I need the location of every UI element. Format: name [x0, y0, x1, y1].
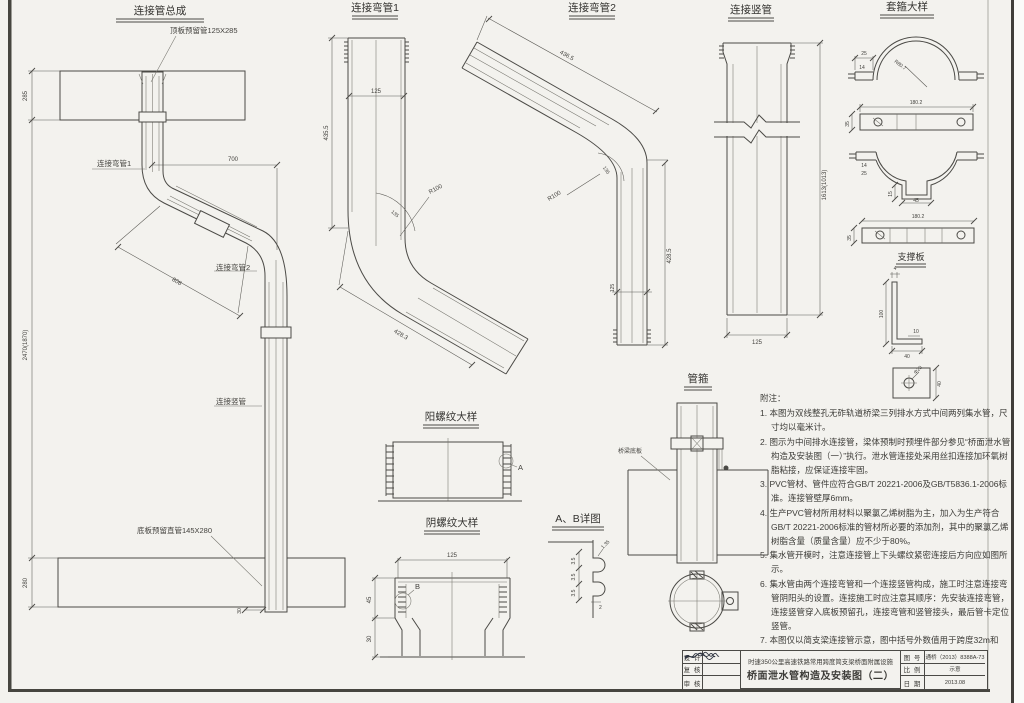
view-title: 连接弯管2	[568, 1, 616, 14]
hole-crosshair	[901, 375, 917, 391]
title-underline	[728, 18, 774, 21]
dim-40b: 40	[937, 381, 943, 387]
note-item: 6. 集水管由两个连接弯管和一个连接竖管构成，施工时注意连接弯管阴阳头的设置。连…	[760, 577, 1012, 634]
date-label: 日 期	[901, 676, 925, 689]
view-title: 套箍大样	[886, 0, 928, 13]
hoop-upper-band	[855, 37, 977, 80]
dim-2: 2	[599, 605, 602, 611]
dimension-ticks	[883, 279, 939, 401]
dim-14: 14	[859, 65, 865, 71]
check-label: 复 核	[683, 664, 703, 677]
notes-block: 附注： 1. 本图为双线整孔无砟轨道桥梁三列排水方式中间两列集水管，尺寸均以毫米…	[760, 391, 1012, 662]
dim-125: 125	[447, 553, 458, 559]
dimension-ticks	[486, 16, 668, 348]
check-signature	[703, 664, 741, 677]
title-underline	[424, 531, 480, 534]
dim-14b: 14	[861, 163, 867, 169]
dim-r100: R100	[547, 190, 563, 203]
dim-angle: 135	[390, 209, 400, 219]
label-vertical-pipe: 连接竖管	[216, 396, 246, 406]
bolt-hole	[957, 231, 965, 239]
callout-a: A	[518, 463, 523, 472]
hoop-bar1-dividers	[873, 114, 916, 130]
label-top-sleeve: 顶板预留管125X285	[170, 25, 238, 35]
male-threads	[386, 444, 511, 496]
dim-285: 285	[23, 90, 29, 101]
label-bend1: 连接弯管1	[97, 158, 131, 168]
vpipe-inner-lines	[733, 46, 781, 313]
scale-value: 示意	[925, 664, 985, 677]
view-title: 连接管总成	[134, 4, 187, 17]
view-title: 管箍	[688, 372, 709, 385]
drawing-sheet: 连接管总成 285 2470(1870) 280 700 808 30 顶板预留…	[0, 0, 1024, 703]
bolt-hole	[957, 118, 965, 126]
bracket-hole	[727, 598, 734, 605]
dimension-lines	[579, 549, 603, 602]
bend1-threads	[344, 42, 409, 62]
view-male-thread: 阳螺纹大样 A	[378, 410, 523, 501]
review-label: 审 核	[683, 676, 703, 689]
bottom-slab	[58, 558, 345, 607]
title-underline	[116, 19, 204, 22]
anchor-bolt	[724, 466, 729, 471]
dimension-ticks	[724, 40, 823, 338]
view-pipe-clamp: 管箍 桥梁底板	[618, 372, 768, 631]
callout-leader	[512, 465, 517, 467]
hoop-bar1	[860, 114, 973, 130]
dim-45: 45	[913, 198, 919, 204]
dim-1-35: 1.35	[600, 539, 611, 550]
view-bend1: 连接弯管1 125 435.5 R100 135 428.3	[324, 1, 528, 374]
dim-15: 15	[888, 191, 894, 197]
title-underline	[880, 15, 934, 18]
dim-180-1: 180.2	[910, 100, 923, 106]
drawing-no-label: 图 号	[901, 651, 925, 664]
dim-3-5-a: 3.5	[571, 557, 577, 564]
callout-b: B	[415, 582, 420, 591]
dim-125: 125	[371, 89, 382, 95]
leader-lines	[92, 36, 262, 586]
drawing-title-cell: 时速350公里高速铁路常用跨度简支梁桥面附属设施 桥面泄水管构造及安装图（二）	[741, 651, 901, 689]
dim-700: 700	[228, 157, 239, 163]
dim-428: 428.5	[667, 248, 673, 264]
dim-3-5-b: 3.5	[571, 573, 577, 580]
dim-hole: Φ20	[913, 365, 924, 376]
hoop-upper-bolt-ticks	[848, 74, 984, 78]
break-mask	[712, 123, 804, 136]
title-underline	[684, 387, 712, 390]
dimension-ticks	[329, 35, 475, 368]
dim-125: 125	[752, 340, 763, 346]
dim-10: 10	[913, 329, 919, 335]
hoop-lower-bolt-ticks	[849, 154, 984, 158]
dim-2470: 2470(1870)	[23, 330, 29, 361]
dim-436: 436.5	[558, 50, 575, 63]
dim-45: 45	[367, 596, 373, 603]
notes-header: 附注：	[760, 391, 1012, 405]
view-female-thread: 阴螺纹大样 125 45 30 B	[367, 516, 525, 660]
note-item: 3. PVC管材、管件应符合GB/T 20221-2006及GB/T5836.1…	[760, 477, 1012, 505]
dim-25: 25	[861, 51, 867, 57]
dim-35-2: 35	[847, 235, 853, 241]
ring-crosshair	[668, 572, 726, 630]
date-value: 2013.08	[925, 676, 985, 689]
view-assembly: 连接管总成 285 2470(1870) 280 700 808 30 顶板预留…	[23, 4, 345, 614]
coupling-vertical	[261, 327, 291, 338]
dimension-lines	[372, 558, 507, 657]
note-item: 1. 本图为双线整孔无砟轨道桥梁三列排水方式中间两列集水管，尺寸均以毫米计。	[760, 406, 1012, 434]
dim-3-5-c: 3.5	[571, 589, 577, 596]
view-support-plate: 支撑板 4 100 10 40 Φ20 40	[879, 251, 943, 401]
review-signature	[703, 676, 741, 689]
dim-35-1: 35	[845, 121, 851, 127]
title-block: 设 计 时速350公里高速铁路常用跨度简支梁桥面附属设施 桥面泄水管构造及安装图…	[682, 650, 988, 690]
dimension-lines	[328, 38, 472, 365]
dim-angle: 135	[601, 165, 611, 175]
title-underline	[896, 264, 926, 267]
dim-25b: 25	[861, 171, 867, 177]
coupling-top	[139, 112, 166, 122]
view-hoop: 套箍大样 25 14 R80.7 180.2 35 14 25 15 45 18…	[845, 0, 984, 246]
title-underline	[423, 425, 479, 428]
dim-125: 125	[610, 284, 616, 293]
dim-r80: R80.7	[893, 59, 907, 72]
dim-40: 40	[904, 354, 910, 360]
dim-280: 280	[23, 577, 29, 588]
dim-1613: 1613(1013)	[822, 170, 828, 201]
dim-4: 4	[894, 266, 897, 272]
label-bottom-sleeve: 底板预留直管145X280	[137, 525, 212, 535]
scale-label: 比 例	[901, 664, 925, 677]
dim-30: 30	[237, 608, 243, 614]
female-body	[380, 578, 525, 657]
title-underline	[352, 16, 398, 19]
label-bend2: 连接弯管2	[216, 262, 250, 272]
hoop-bar2-dividers	[875, 228, 942, 243]
dim-30: 30	[367, 635, 373, 642]
view-title: 连接弯管1	[351, 1, 399, 14]
label-slab: 桥梁底板	[618, 447, 642, 455]
view-title: 阴螺纹大样	[426, 516, 479, 529]
title-underline	[569, 16, 615, 19]
view-vertical-pipe: 连接竖管 1613(1013) 125	[712, 3, 828, 346]
dim-428: 428.3	[393, 329, 410, 342]
drawing-title: 桥面泄水管构造及安装图（二）	[747, 667, 894, 682]
dim-r100: R100	[428, 183, 444, 195]
hoop-lower-band	[856, 152, 977, 199]
dim-808: 808	[171, 277, 183, 288]
dim-180-2: 180.2	[912, 214, 925, 220]
note-item: 2. 图示为中间排水连接管，梁体预制时预埋件部分参见“桥面泄水管构造及安装图（一…	[760, 435, 1012, 478]
view-ab-detail: A、B详图 3.5 3.5 3.5 1.35 2	[548, 512, 611, 618]
note-item: 5. 集水管开模时，注意连接管上下头螺纹紧密连接后方向应如图所示。	[760, 548, 1012, 576]
view-title: 阳螺纹大样	[425, 410, 478, 423]
callout-leader	[408, 590, 414, 595]
view-title: 支撑板	[897, 251, 924, 262]
dimension-ticks	[372, 557, 510, 660]
dim-100: 100	[879, 310, 885, 319]
view-title: 连接竖管	[730, 3, 772, 16]
dimension-lines	[727, 43, 823, 338]
dimension-lines	[477, 16, 668, 345]
note-item: 4. 生产PVC管材所用材料以聚氯乙烯树脂为主，加入为生产符合GB/T 2022…	[760, 506, 1012, 549]
project-name: 时速350公里高速铁路常用跨度简支梁桥面附属设施	[748, 657, 893, 666]
view-bend2: 连接弯管2 436.5 R100 135 428.5 125	[462, 1, 673, 348]
drawing-no-value: 通桥（2013）8388A-73	[925, 651, 985, 664]
view-title: A、B详图	[555, 512, 601, 525]
paper-edge	[1014, 0, 1024, 703]
slab-leader	[641, 456, 670, 480]
dim-435: 435.5	[324, 125, 330, 141]
title-underline	[552, 527, 604, 530]
